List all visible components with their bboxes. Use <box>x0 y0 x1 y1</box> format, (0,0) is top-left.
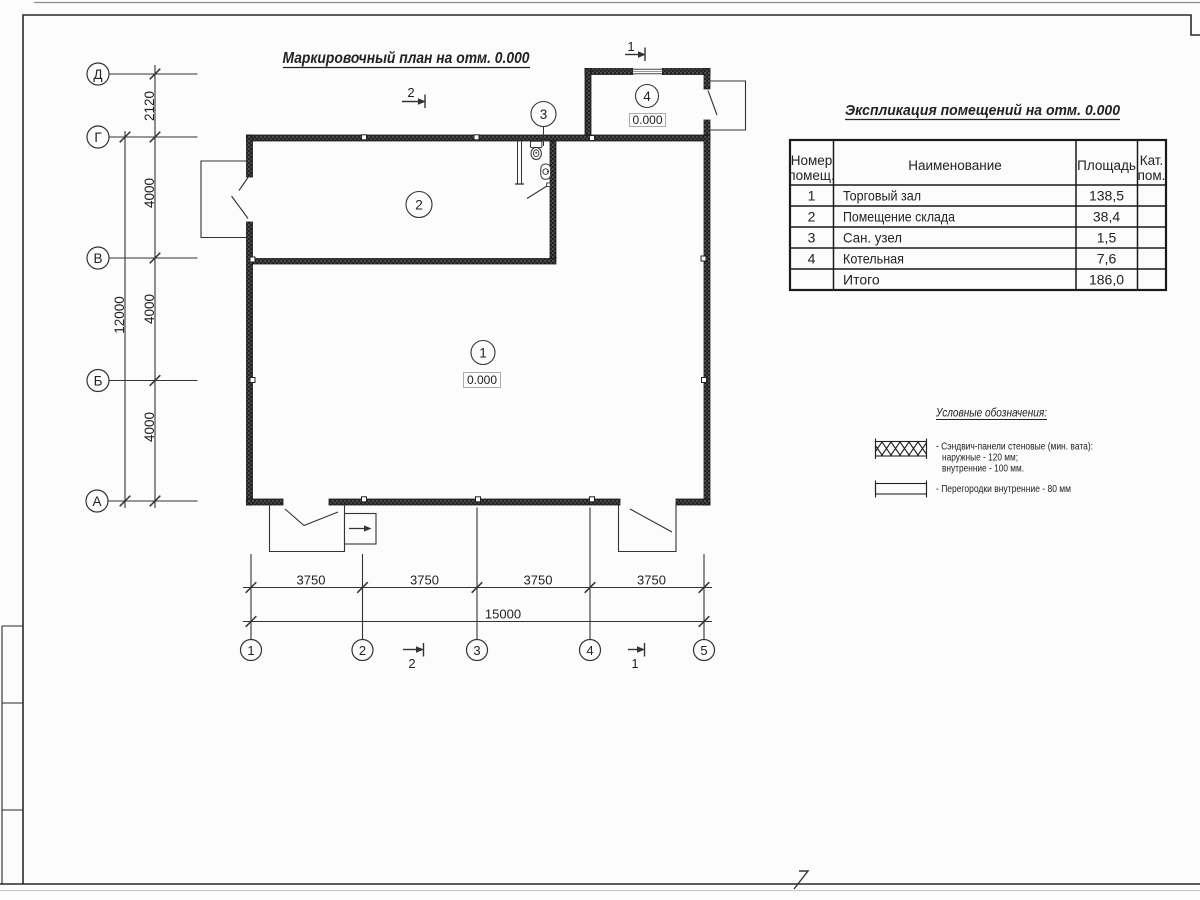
svg-text:Г: Г <box>94 130 102 145</box>
svg-text:Экспликация помещений на отм.: Экспликация помещений на отм. 0.000 <box>845 102 1121 119</box>
svg-text:2: 2 <box>808 209 816 225</box>
svg-text:1: 1 <box>631 656 638 671</box>
svg-text:4000: 4000 <box>142 178 157 208</box>
svg-text:4000: 4000 <box>142 294 157 324</box>
svg-text:3: 3 <box>473 643 480 658</box>
svg-text:3750: 3750 <box>297 573 326 588</box>
svg-text:38,4: 38,4 <box>1093 209 1120 225</box>
svg-text:пом.: пом. <box>1138 168 1166 183</box>
svg-text:- Перегородки внутренние - 80: - Перегородки внутренние - 80 мм <box>936 484 1071 495</box>
svg-text:Помещение склада: Помещение склада <box>843 209 955 225</box>
svg-text:1: 1 <box>479 346 487 361</box>
svg-text:2120: 2120 <box>142 91 157 121</box>
svg-text:Итого: Итого <box>843 272 880 288</box>
svg-text:7,6: 7,6 <box>1097 251 1117 267</box>
svg-text:А: А <box>92 494 101 509</box>
svg-text:Маркировочный план на отм. 0.0: Маркировочный план на отм. 0.000 <box>283 50 530 67</box>
svg-text:1,5: 1,5 <box>1097 230 1117 246</box>
svg-text:Сан. узел: Сан. узел <box>843 230 902 246</box>
svg-text:наружные - 120 мм;: наружные - 120 мм; <box>942 453 1018 464</box>
svg-text:- Сэндвич-панели стеновые (мин: - Сэндвич-панели стеновые (мин. вата): <box>936 442 1093 453</box>
svg-text:Номер: Номер <box>791 153 833 168</box>
svg-text:1: 1 <box>247 643 254 658</box>
svg-text:4: 4 <box>808 251 816 267</box>
svg-text:3750: 3750 <box>637 573 666 588</box>
svg-text:Условные обозначения:: Условные обозначения: <box>935 406 1047 420</box>
svg-text:Наименование: Наименование <box>908 158 1002 173</box>
svg-text:4: 4 <box>643 89 651 104</box>
svg-text:0.000: 0.000 <box>467 373 497 387</box>
svg-text:2: 2 <box>407 85 414 100</box>
svg-text:3: 3 <box>808 230 816 246</box>
svg-text:0.000: 0.000 <box>632 113 662 127</box>
svg-text:1: 1 <box>808 188 816 204</box>
svg-text:3: 3 <box>540 107 548 122</box>
svg-text:Д: Д <box>93 67 102 82</box>
svg-text:15000: 15000 <box>485 607 521 622</box>
svg-text:186,0: 186,0 <box>1089 272 1124 288</box>
svg-text:3750: 3750 <box>410 573 439 588</box>
svg-text:внутренние - 100 мм.: внутренние - 100 мм. <box>942 464 1024 475</box>
svg-text:Торговый зал: Торговый зал <box>843 188 921 204</box>
svg-text:Котельная: Котельная <box>843 251 904 267</box>
svg-text:2: 2 <box>415 198 423 213</box>
svg-text:3750: 3750 <box>524 573 553 588</box>
svg-text:Кат.: Кат. <box>1140 153 1164 168</box>
svg-text:2: 2 <box>359 643 366 658</box>
svg-text:138,5: 138,5 <box>1089 188 1124 204</box>
svg-text:1: 1 <box>627 39 634 54</box>
svg-text:12000: 12000 <box>112 296 127 334</box>
svg-text:В: В <box>93 251 102 266</box>
svg-text:4: 4 <box>586 643 593 658</box>
svg-text:2: 2 <box>408 656 415 671</box>
svg-text:помещ.: помещ. <box>788 168 834 183</box>
svg-text:Площадь: Площадь <box>1077 158 1136 173</box>
svg-text:5: 5 <box>700 643 707 658</box>
svg-text:Б: Б <box>94 374 103 389</box>
svg-text:4000: 4000 <box>142 412 157 442</box>
